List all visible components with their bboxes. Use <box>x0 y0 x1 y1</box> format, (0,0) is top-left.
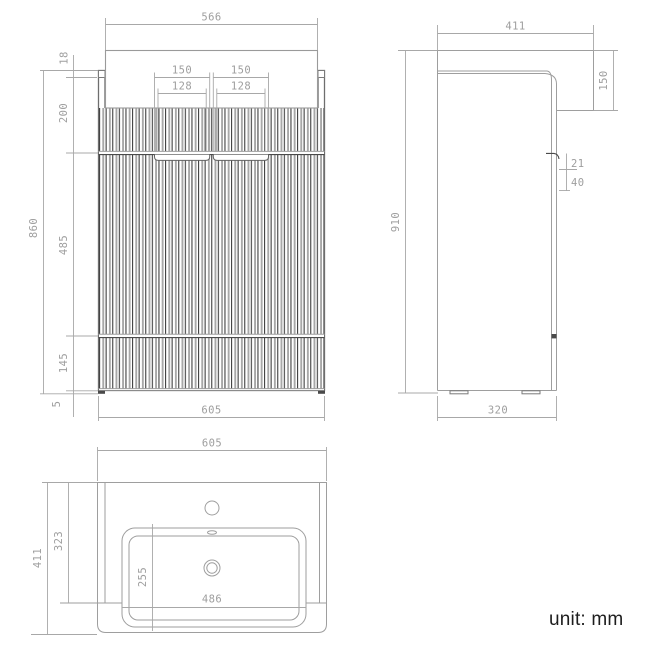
top-basin-outer <box>122 528 306 627</box>
side-door-divider <box>552 334 557 338</box>
dim-front-height-chain: 18 200 485 145 5 <box>40 51 98 417</box>
dim-top-depth-label: 411 <box>32 548 44 568</box>
dim-side-total-height: 910 <box>390 51 438 394</box>
dim-top-deck-depth: 323 <box>53 483 69 604</box>
dim-handle-outer-left-label: 150 <box>172 65 192 77</box>
dim-front-body-height-label: 860 <box>28 218 40 238</box>
top-view: 605 411 323 255 486 <box>31 438 327 635</box>
side-front-foot <box>522 391 540 394</box>
dim-front-body-height: 860 <box>28 71 44 394</box>
faucet-hole <box>205 501 219 515</box>
dim-front-top-width: 566 <box>106 12 318 51</box>
dim-front-bottom-width-label: 605 <box>201 405 221 417</box>
dim-counter-lip-label: 18 <box>59 51 71 64</box>
dim-top-deck-depth-label: 323 <box>53 531 65 551</box>
front-drawer-divider <box>99 334 325 337</box>
side-door-face <box>438 74 557 391</box>
dim-handle-gap-label: 21 <box>571 158 584 170</box>
dim-side-bottom-depth-label: 320 <box>488 405 508 417</box>
dim-side-basin-height: 150 <box>594 51 619 111</box>
top-counter-outline <box>98 483 327 633</box>
dim-front-bottom-width: 605 <box>99 396 325 421</box>
side-counter-underside <box>438 71 552 391</box>
front-bottom-edge <box>99 389 325 391</box>
dim-handle-recess-label: 40 <box>571 177 584 189</box>
dim-front-top-width-label: 566 <box>201 12 221 24</box>
front-flute-texture <box>99 108 324 390</box>
front-right-door-handle <box>213 155 268 161</box>
front-right-foot <box>318 391 325 394</box>
dim-side-handle: 21 40 <box>559 154 584 192</box>
front-view: 566 18 200 485 145 5 860 <box>28 12 325 422</box>
overflow-slot <box>208 531 217 535</box>
front-right-wall-tab <box>318 71 325 78</box>
dim-door-section-label: 485 <box>58 235 70 255</box>
dim-handle-inner-right-label: 128 <box>231 81 251 93</box>
front-left-door-handle <box>155 155 210 161</box>
front-left-wall-tab <box>99 71 106 78</box>
dim-foot-height-label: 5 <box>51 401 63 408</box>
dim-top-basin-width-label: 486 <box>202 594 222 606</box>
side-view: 411 910 150 21 40 320 <box>390 21 618 422</box>
vanity-technical-drawing: 566 18 200 485 145 5 860 <box>0 0 650 650</box>
drain-hole <box>204 560 220 576</box>
dim-handle-inner-left-label: 128 <box>172 81 192 93</box>
dim-lower-section-label: 145 <box>58 353 70 373</box>
dim-handle-outer-right-label: 150 <box>231 65 251 77</box>
dim-side-basin-height-label: 150 <box>598 70 610 90</box>
dim-top-depth: 411 <box>31 483 97 635</box>
dim-side-top-depth-label: 411 <box>505 21 525 33</box>
dim-top-basin-width: 486 <box>122 594 306 608</box>
dim-top-width: 605 <box>98 438 327 482</box>
side-back-foot <box>450 391 468 394</box>
unit-note: unit: mm <box>549 609 623 630</box>
front-door-top-gap <box>99 151 325 154</box>
front-left-foot <box>98 391 105 394</box>
side-handle-profile <box>546 153 559 159</box>
dim-top-basin-depth: 255 <box>137 524 153 631</box>
dim-side-bottom-depth: 320 <box>438 396 557 421</box>
dim-side-top-depth: 411 <box>438 21 594 51</box>
dim-side-total-height-label: 910 <box>390 212 402 232</box>
front-basin <box>106 51 318 109</box>
dim-top-width-label: 605 <box>202 438 222 450</box>
drawing-canvas: 566 18 200 485 145 5 860 <box>0 0 650 650</box>
dim-top-basin-depth-label: 255 <box>137 567 149 587</box>
dim-upper-section-label: 200 <box>58 103 70 123</box>
